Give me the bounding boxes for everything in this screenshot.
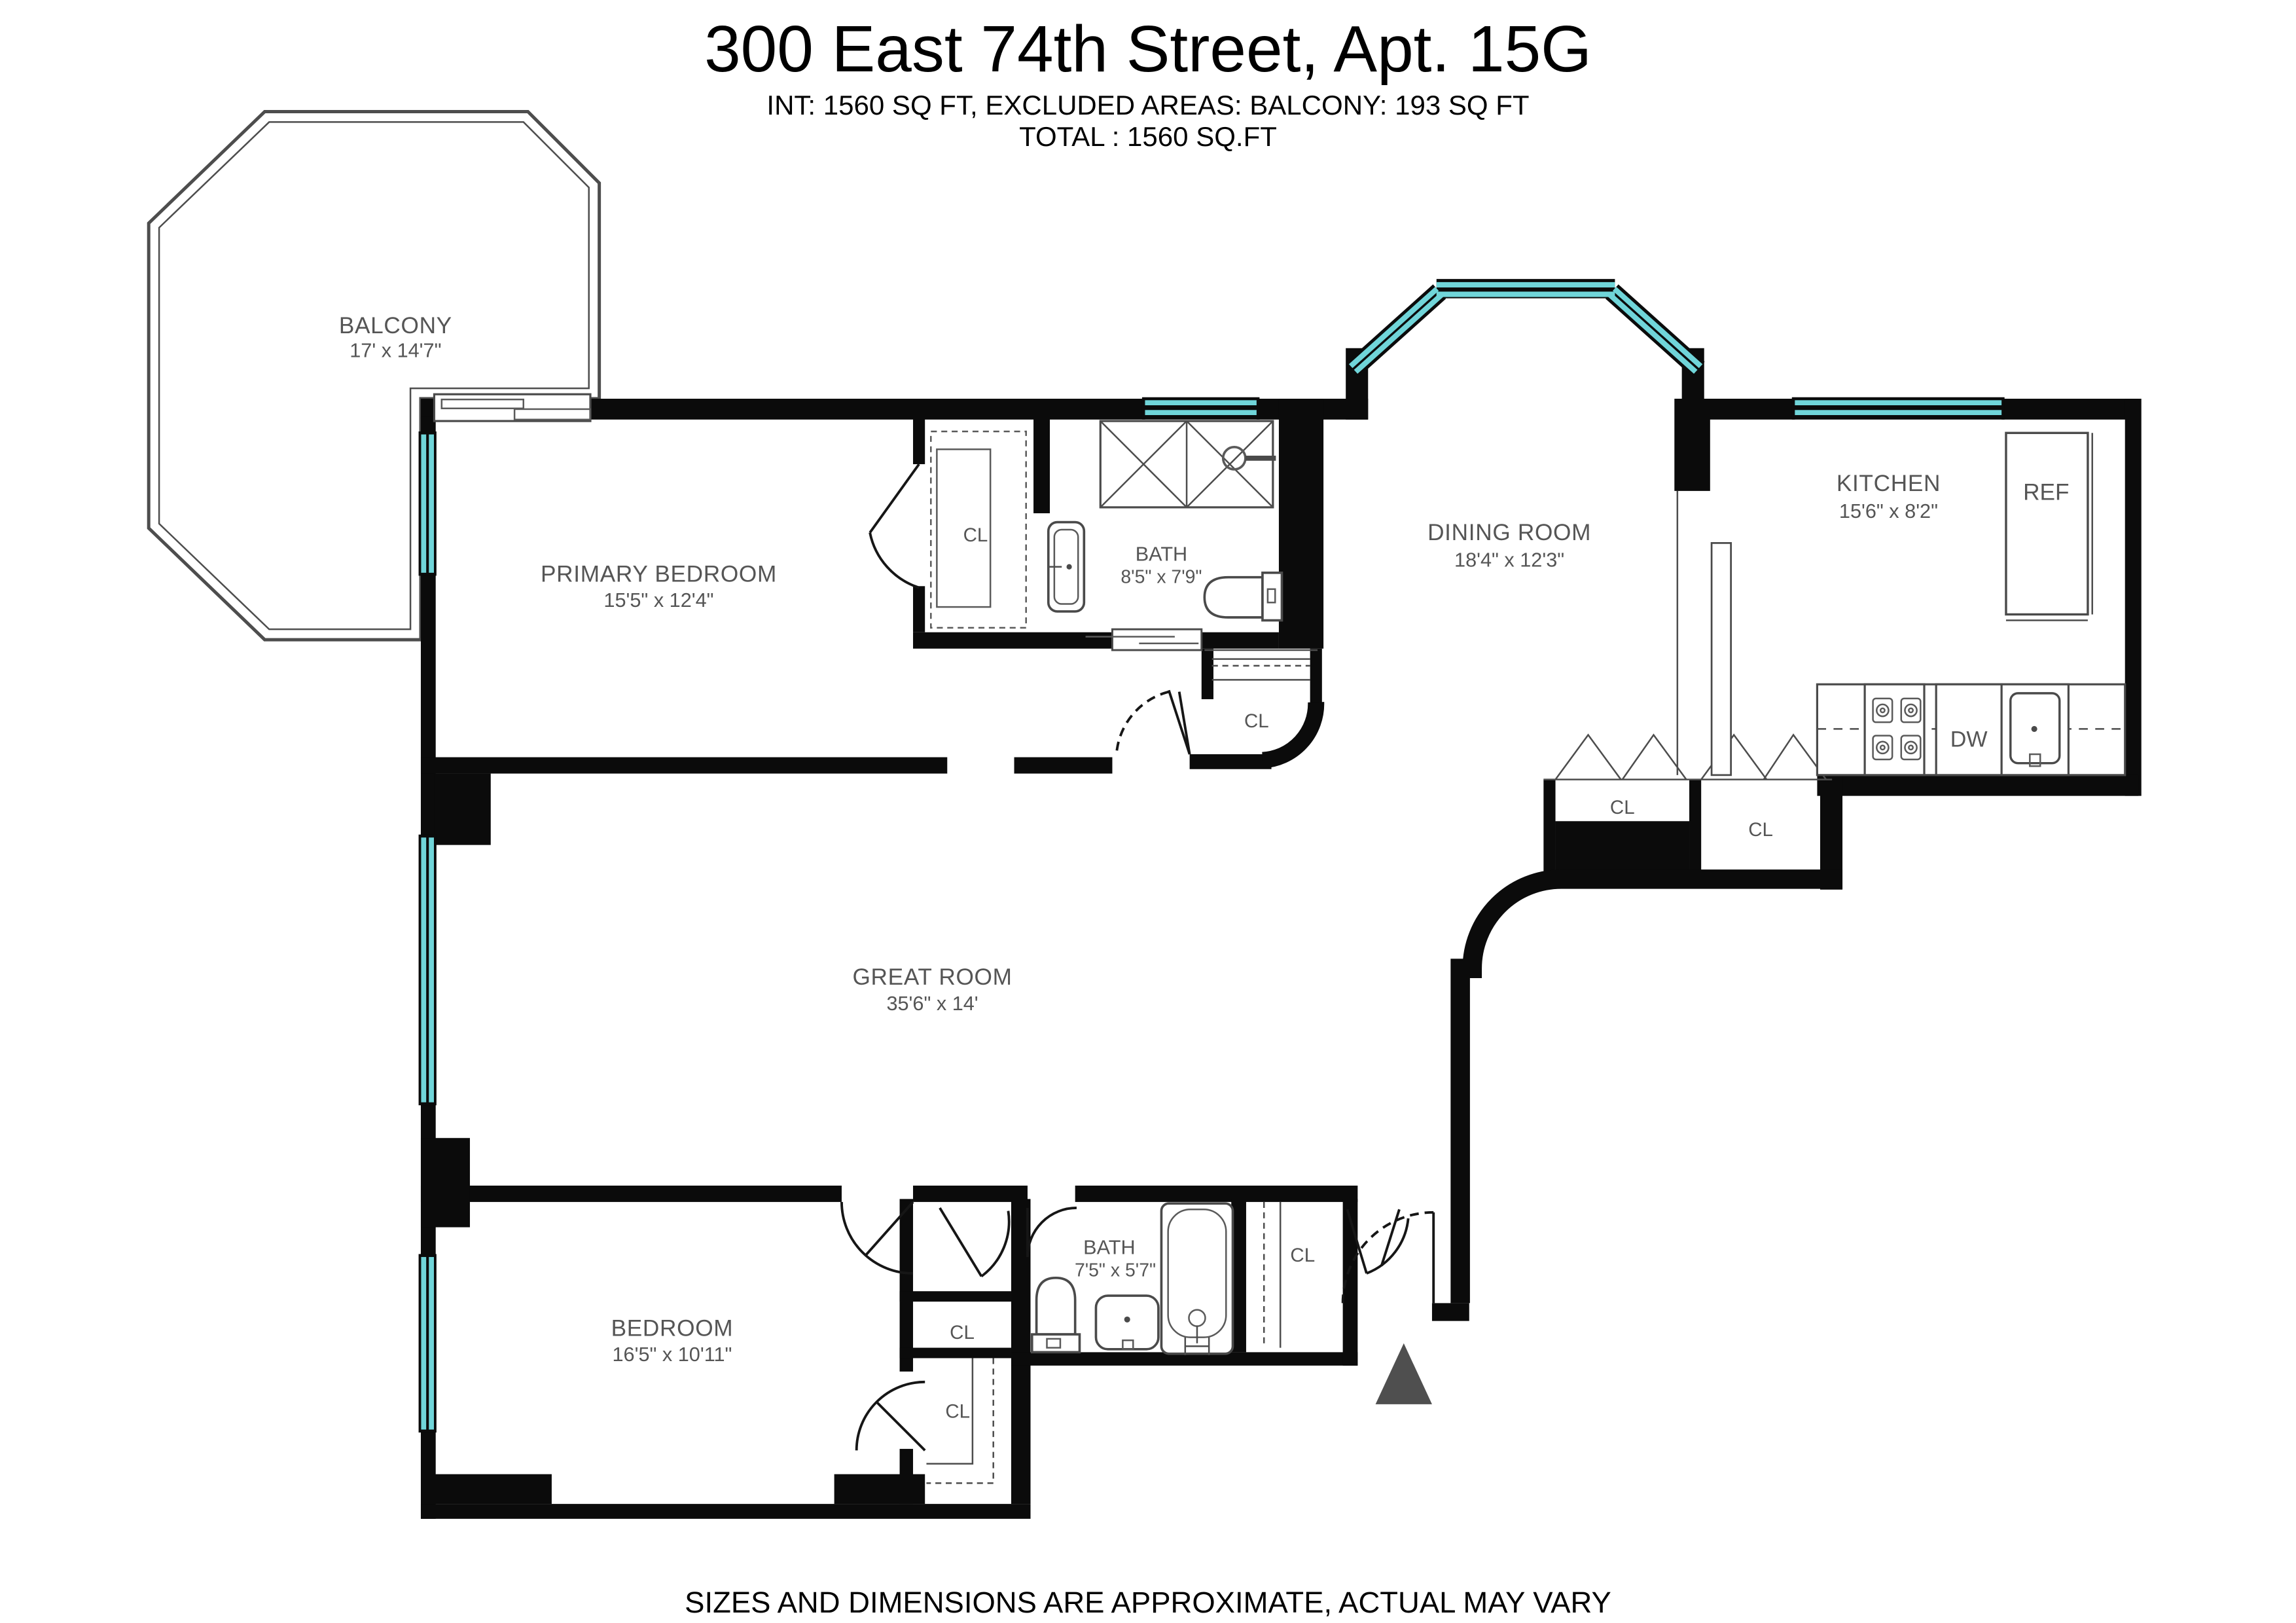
page-subtitle-1: INT: 1560 SQ FT, EXCLUDED AREAS: BALCONY… <box>766 90 1529 120</box>
entry-closet-rod <box>1264 1202 1280 1348</box>
bay-window <box>1351 282 1701 372</box>
svg-text:7'5" x 5'7": 7'5" x 5'7" <box>1075 1260 1156 1281</box>
shower-icon <box>1100 421 1276 507</box>
stove-burners <box>1865 684 1924 775</box>
room-label-bath-primary: BATH 8'5" x 7'9" <box>1121 543 1202 588</box>
svg-text:BEDROOM: BEDROOM <box>611 1315 734 1341</box>
dishwasher-label: DW <box>1950 727 1988 752</box>
closet-label-entry: CL <box>1290 1245 1315 1266</box>
refrigerator-box <box>2006 433 2092 620</box>
toilet-icon <box>1204 573 1282 621</box>
hall-closet-shelves <box>1204 650 1318 680</box>
floor-plan: BALCONY 17' x 14'7" PRIMARY BEDROOM 15'5… <box>0 0 2296 1623</box>
bath-sink-icon <box>1049 522 1085 611</box>
svg-text:15'5" x 12'4": 15'5" x 12'4" <box>603 589 713 611</box>
svg-text:BALCONY: BALCONY <box>339 313 452 338</box>
room-label-balcony: BALCONY 17' x 14'7" <box>339 313 452 361</box>
svg-text:35'6" x 14': 35'6" x 14' <box>886 993 978 1015</box>
toilet-second-icon <box>1032 1278 1080 1353</box>
disclaimer-text: SIZES AND DIMENSIONS ARE APPROXIMATE, AC… <box>685 1586 1611 1619</box>
closet-label-hall: CL <box>1244 710 1269 732</box>
svg-text:DINING ROOM: DINING ROOM <box>1427 520 1591 545</box>
svg-text:KITCHEN: KITCHEN <box>1837 471 1941 496</box>
bath-second-sink-icon <box>1096 1296 1158 1349</box>
door-arc-primary-closet <box>870 464 919 588</box>
svg-text:8'5" x 7'9": 8'5" x 7'9" <box>1121 567 1202 588</box>
svg-text:16'5" x 10'11": 16'5" x 10'11" <box>613 1343 732 1366</box>
svg-text:17' x 14'7": 17' x 14'7" <box>350 339 441 361</box>
svg-text:BATH: BATH <box>1083 1236 1135 1258</box>
closet-label-primary: CL <box>963 524 988 546</box>
door-arc-bath-second <box>1028 1208 1077 1257</box>
room-label-bedroom: BEDROOM 16'5" x 10'11" <box>611 1315 734 1366</box>
svg-text:GREAT ROOM: GREAT ROOM <box>852 964 1012 990</box>
window-bedroom <box>419 1254 437 1432</box>
door-arc-bedroom-closet <box>857 1382 925 1451</box>
balcony-sliding-door <box>434 394 590 421</box>
room-label-primary-bedroom: PRIMARY BEDROOM 15'5" x 12'4" <box>541 561 777 611</box>
door-arc-hall-closet <box>940 1208 1009 1277</box>
room-label-great-room: GREAT ROOM 35'6" x 14' <box>852 964 1012 1015</box>
bathtub-icon <box>1161 1203 1232 1355</box>
closet-label-bedroom-upper: CL <box>950 1322 975 1343</box>
svg-text:BATH: BATH <box>1136 543 1187 566</box>
window-bath-primary <box>1142 397 1259 420</box>
svg-text:18'4" x 12'3": 18'4" x 12'3" <box>1454 549 1564 572</box>
room-label-dining-room: DINING ROOM 18'4" x 12'3" <box>1427 520 1591 572</box>
kitchen-sink-icon <box>2001 684 2068 775</box>
closet-label-bedroom-lower: CL <box>945 1400 970 1422</box>
svg-text:PRIMARY BEDROOM: PRIMARY BEDROOM <box>541 561 777 587</box>
room-label-bath-second: BATH 7'5" x 5'7" <box>1075 1236 1156 1281</box>
closet-label-kitchen-left: CL <box>1610 797 1635 818</box>
page-subtitle-2: TOTAL : 1560 SQ.FT <box>1019 121 1277 152</box>
north-arrow-triangle <box>1376 1343 1432 1404</box>
room-label-kitchen: KITCHEN 15'6" x 8'2" <box>1837 471 1941 522</box>
window-kitchen <box>1792 397 2005 420</box>
kitchen-closet-bifold-doors <box>1543 735 1832 779</box>
window-primary-bedroom <box>419 431 437 575</box>
closet-label-kitchen-right: CL <box>1748 819 1773 841</box>
door-arc-hall <box>1117 690 1189 754</box>
svg-text:15'6" x 8'2": 15'6" x 8'2" <box>1839 500 1938 522</box>
window-great-room <box>419 835 437 1106</box>
page-title: 300 East 74th Street, Apt. 15G <box>704 13 1592 86</box>
refrigerator-label: REF <box>2023 480 2069 505</box>
balcony-outline <box>149 112 599 640</box>
